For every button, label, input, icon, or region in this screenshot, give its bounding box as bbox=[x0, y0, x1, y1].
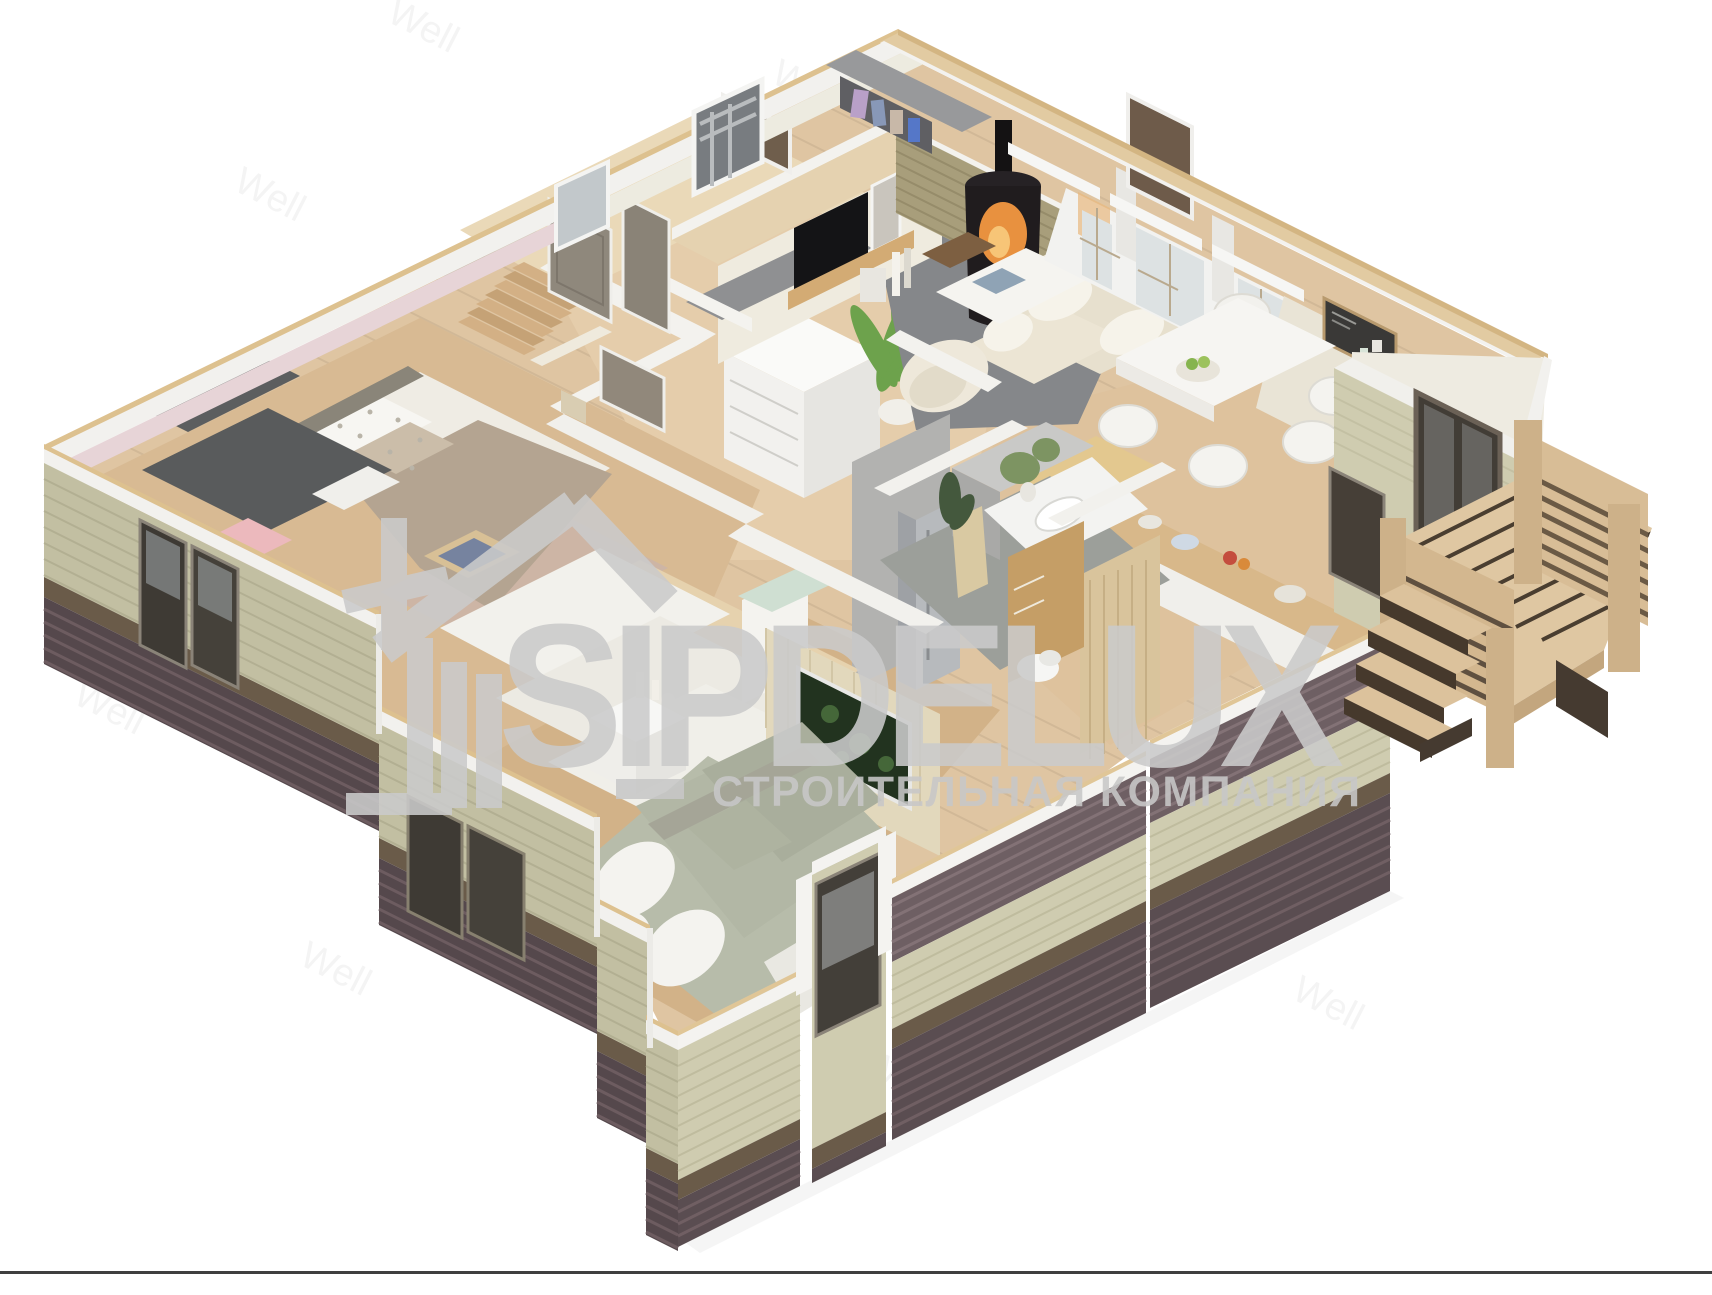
svg-text:СТРОИТЕЛЬНАЯ КОМПАНИЯ: СТРОИТЕЛЬНАЯ КОМПАНИЯ bbox=[712, 768, 1367, 816]
